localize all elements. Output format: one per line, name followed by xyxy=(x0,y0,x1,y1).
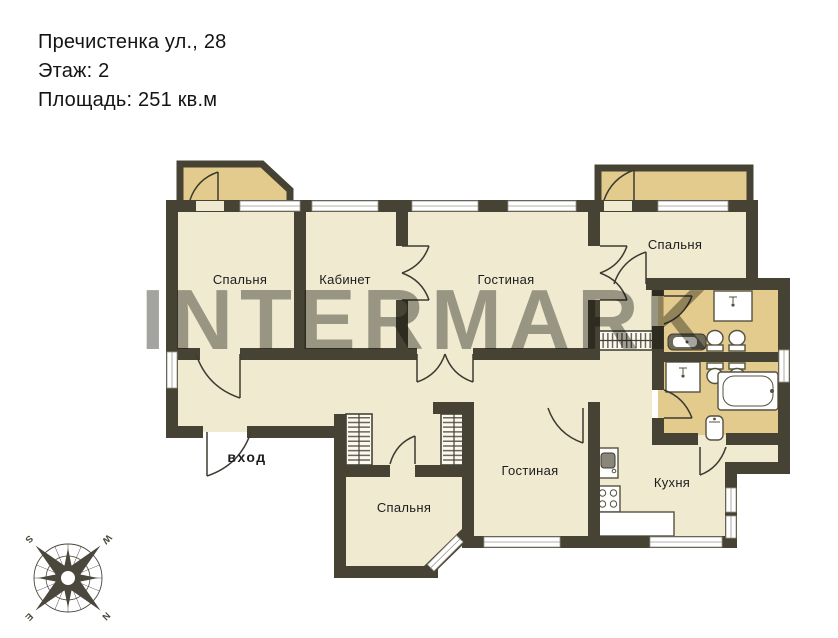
compass-n: N xyxy=(99,610,112,623)
room-label-living-bottom: Гостиная xyxy=(502,463,559,478)
room-label-bedroom-top-right: Спальня xyxy=(648,237,702,252)
room-label-bedroom-top-left: Спальня xyxy=(213,272,267,287)
room-label-kitchen: Кухня xyxy=(654,475,690,490)
kitchen-counter xyxy=(596,512,674,536)
sink-icon xyxy=(668,334,706,350)
compass-s: S xyxy=(23,533,35,545)
kitchen-sink-icon xyxy=(598,448,618,478)
bathtub-icon xyxy=(718,372,778,410)
room-label-living-top: Гостиная xyxy=(478,272,535,287)
shower-icon xyxy=(714,291,752,321)
entrance-label: вход xyxy=(227,449,266,465)
sink-icon xyxy=(706,416,723,440)
compass-w: W xyxy=(99,532,113,546)
room-label-office: Кабинет xyxy=(319,272,371,287)
shower-icon xyxy=(666,362,700,392)
wardrobe-icon xyxy=(346,414,372,465)
compass-e: E xyxy=(23,610,35,622)
room-label-bedroom-bottom: Спальня xyxy=(377,500,431,515)
floor-plan: Спальня Кабинет Гостиная Спальня Спальня… xyxy=(0,0,838,638)
compass-rose-icon: N E S W xyxy=(0,493,152,638)
toilet-icon xyxy=(729,331,745,352)
toilet-icon xyxy=(707,331,723,352)
floorplan-page: { "header": { "address": "Пречистенка ул… xyxy=(0,0,838,638)
